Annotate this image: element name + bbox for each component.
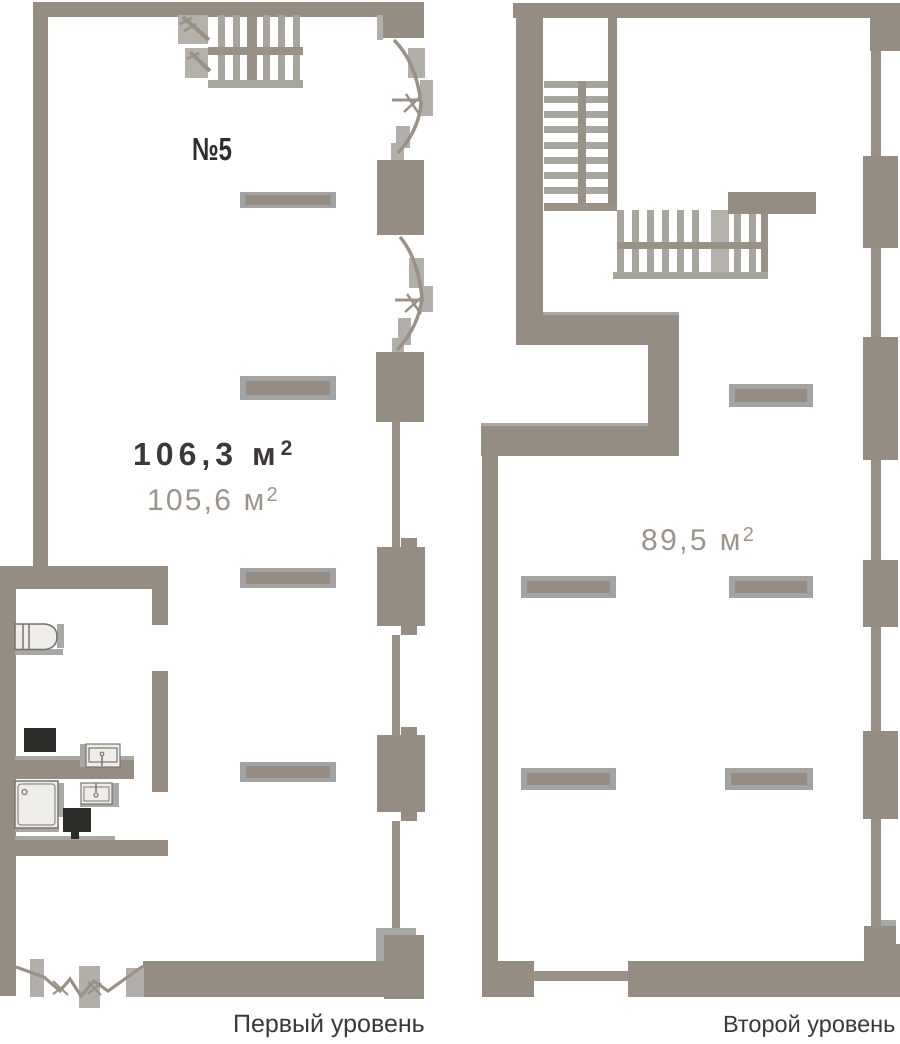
svg-text:№5: №5 bbox=[192, 131, 232, 167]
svg-text:106,3 м2: 106,3 м2 bbox=[133, 436, 297, 472]
svg-text:Первый уровень: Первый уровень bbox=[233, 1010, 425, 1038]
svg-text:Второй уровень: Второй уровень bbox=[723, 1011, 895, 1037]
svg-text:105,6 м2: 105,6 м2 bbox=[147, 484, 280, 517]
svg-text:89,5 м2: 89,5 м2 bbox=[641, 524, 756, 557]
